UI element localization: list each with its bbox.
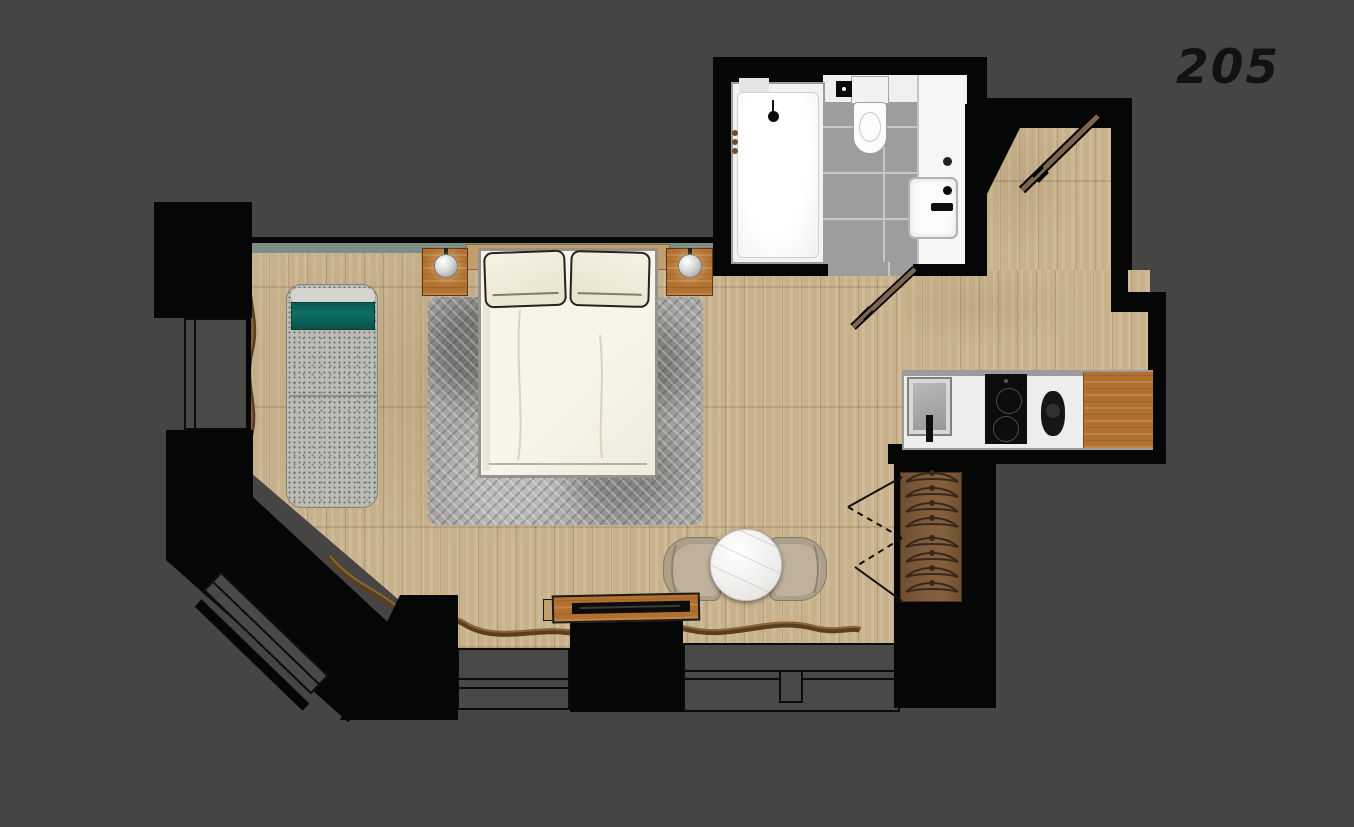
pillow-right-stitch <box>578 292 642 296</box>
cutting-board <box>1083 372 1153 448</box>
entry-wall-jog <box>1111 292 1166 312</box>
tv <box>572 601 690 614</box>
window-bottom-left <box>457 648 570 710</box>
shower-knob-1 <box>732 130 738 136</box>
bathroom-door-threshold <box>828 262 913 276</box>
ball-lamp-left <box>434 254 458 278</box>
toilet-tank <box>851 76 889 104</box>
chaise-teal-blanket <box>291 302 375 330</box>
kettle <box>1041 391 1065 436</box>
shower-knob-2 <box>732 139 738 145</box>
pillar-top-left <box>154 202 252 318</box>
pillar-bottom-center <box>570 620 683 712</box>
floorplan-canvas: 205 <box>0 0 1354 827</box>
kettle-lid <box>1046 404 1060 418</box>
shower-ledge <box>739 78 769 92</box>
window-bl-sill-2 <box>459 687 568 689</box>
chaise-seam <box>289 395 377 397</box>
entry-top-wall <box>985 104 1132 128</box>
bathroom-faucet <box>931 203 953 211</box>
duvet-shade <box>483 301 490 471</box>
towel-hook-icon <box>943 157 952 166</box>
drain-dot <box>842 87 846 91</box>
bedroom-top-wall-line <box>248 237 718 243</box>
toilet-bowl <box>853 102 887 154</box>
ball-lamp-right <box>678 254 702 278</box>
cooktop-control-dot <box>1004 379 1008 383</box>
pillow-left <box>483 250 567 309</box>
entry-right-wall <box>1111 128 1128 296</box>
round-marble-table <box>710 529 782 601</box>
window-left <box>184 318 250 430</box>
chaise-lounge <box>286 284 378 508</box>
kitchen-faucet <box>926 415 933 442</box>
shower-drain-control <box>836 81 852 97</box>
bedroom-left-wall-line <box>246 243 251 471</box>
bathroom-faucet-knob <box>943 186 952 195</box>
burner-front <box>996 388 1022 414</box>
tv-screen-glint <box>580 605 680 609</box>
window-bottom-right <box>683 643 900 712</box>
duvet-fold-line <box>489 463 647 465</box>
shower-head-icon <box>768 111 779 122</box>
window-bl-sill-1 <box>459 678 568 680</box>
tv-console <box>552 592 701 623</box>
pillow-left-stitch <box>493 292 559 296</box>
room-number-label: 205 <box>1176 40 1280 95</box>
window-br-notch <box>779 670 803 703</box>
wardrobe <box>900 472 962 602</box>
toilet-seat-line <box>859 112 881 142</box>
burner-rear <box>993 416 1019 442</box>
shower-knob-3 <box>732 148 738 154</box>
window-left-mullion <box>194 320 196 428</box>
pillow-right <box>569 250 650 308</box>
induction-cooktop <box>985 374 1027 444</box>
